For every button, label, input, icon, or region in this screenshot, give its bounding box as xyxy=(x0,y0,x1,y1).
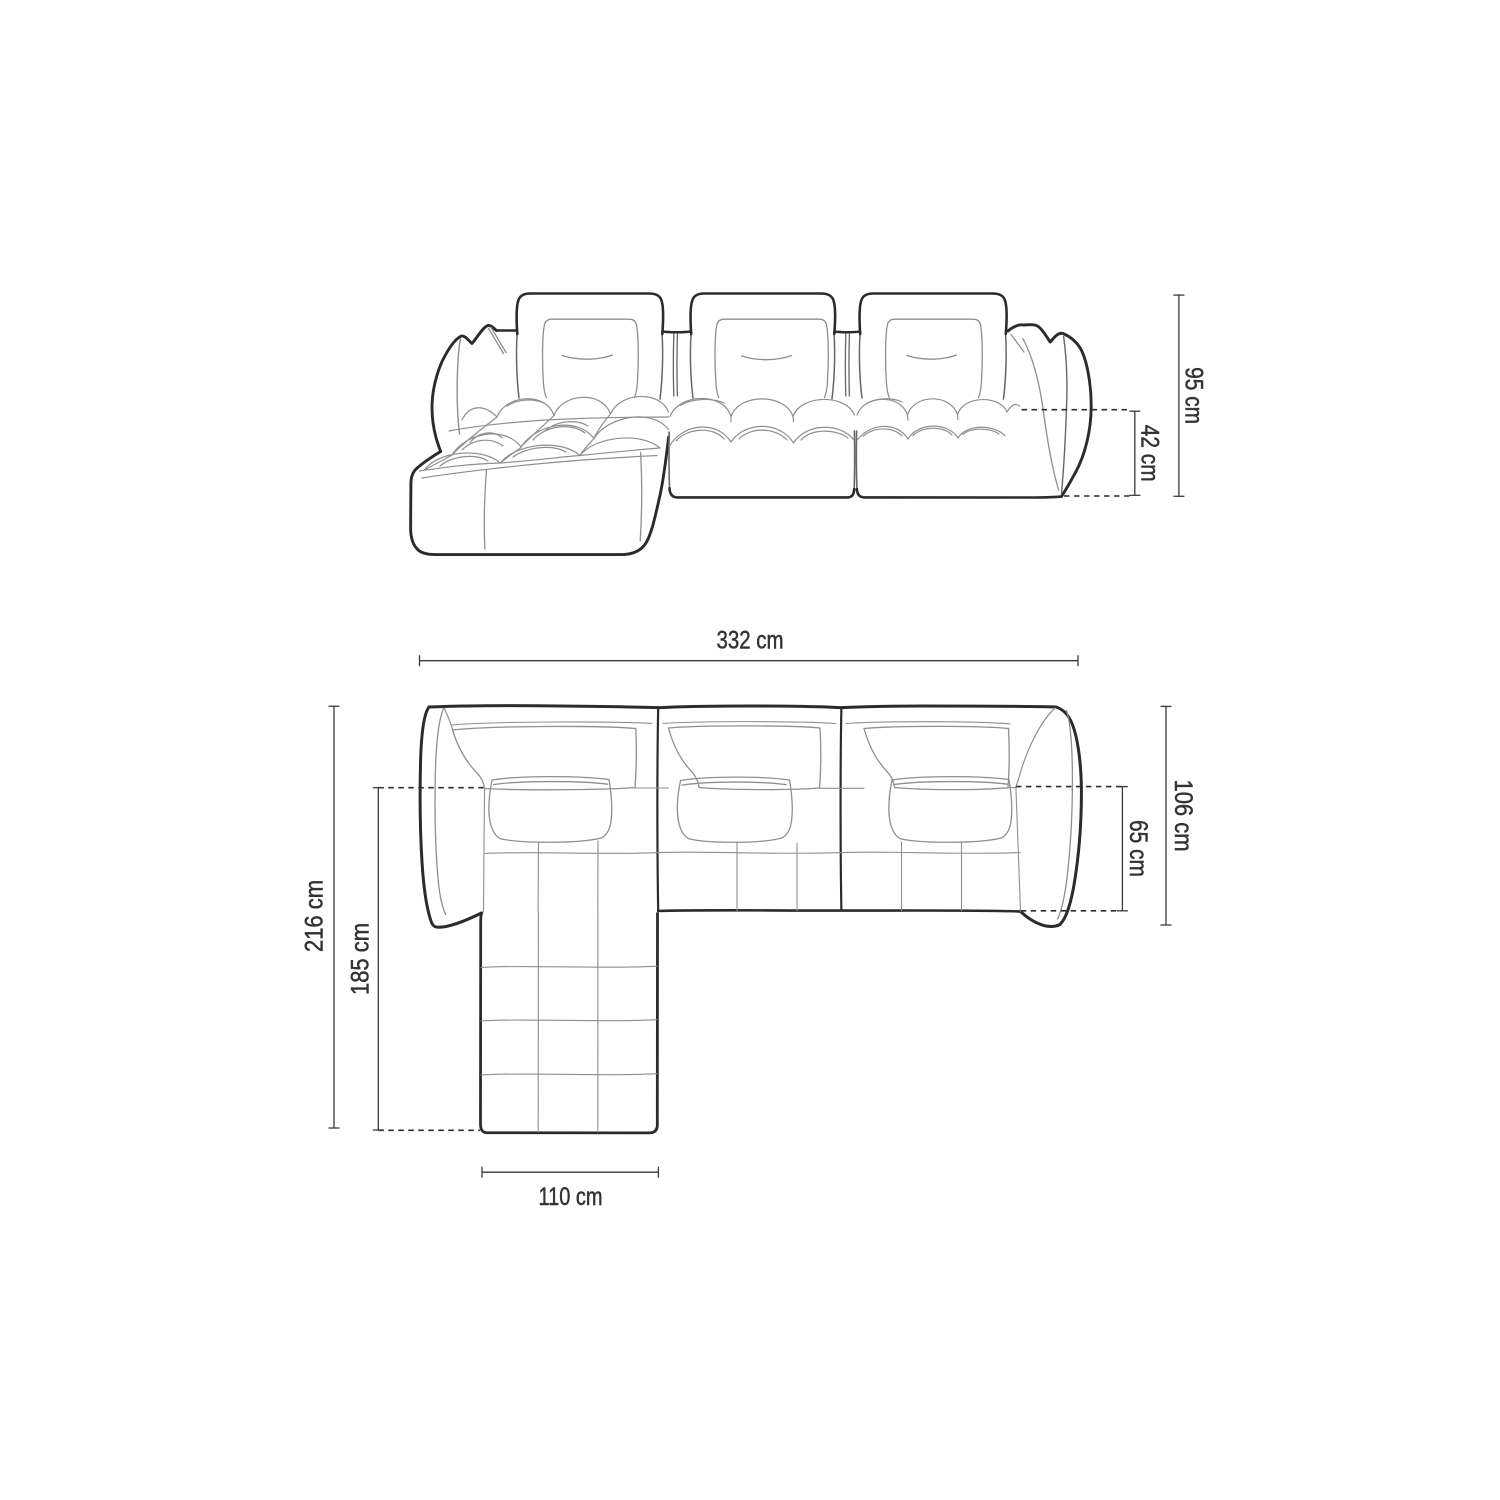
svg-text:42 cm: 42 cm xyxy=(1136,425,1164,482)
svg-text:216 cm: 216 cm xyxy=(301,880,329,952)
svg-text:332 cm: 332 cm xyxy=(717,627,784,655)
svg-text:95 cm: 95 cm xyxy=(1180,367,1208,424)
svg-text:106 cm: 106 cm xyxy=(1169,780,1197,852)
svg-text:110 cm: 110 cm xyxy=(539,1183,603,1211)
svg-text:185 cm: 185 cm xyxy=(347,923,375,995)
svg-text:65 cm: 65 cm xyxy=(1124,820,1152,877)
